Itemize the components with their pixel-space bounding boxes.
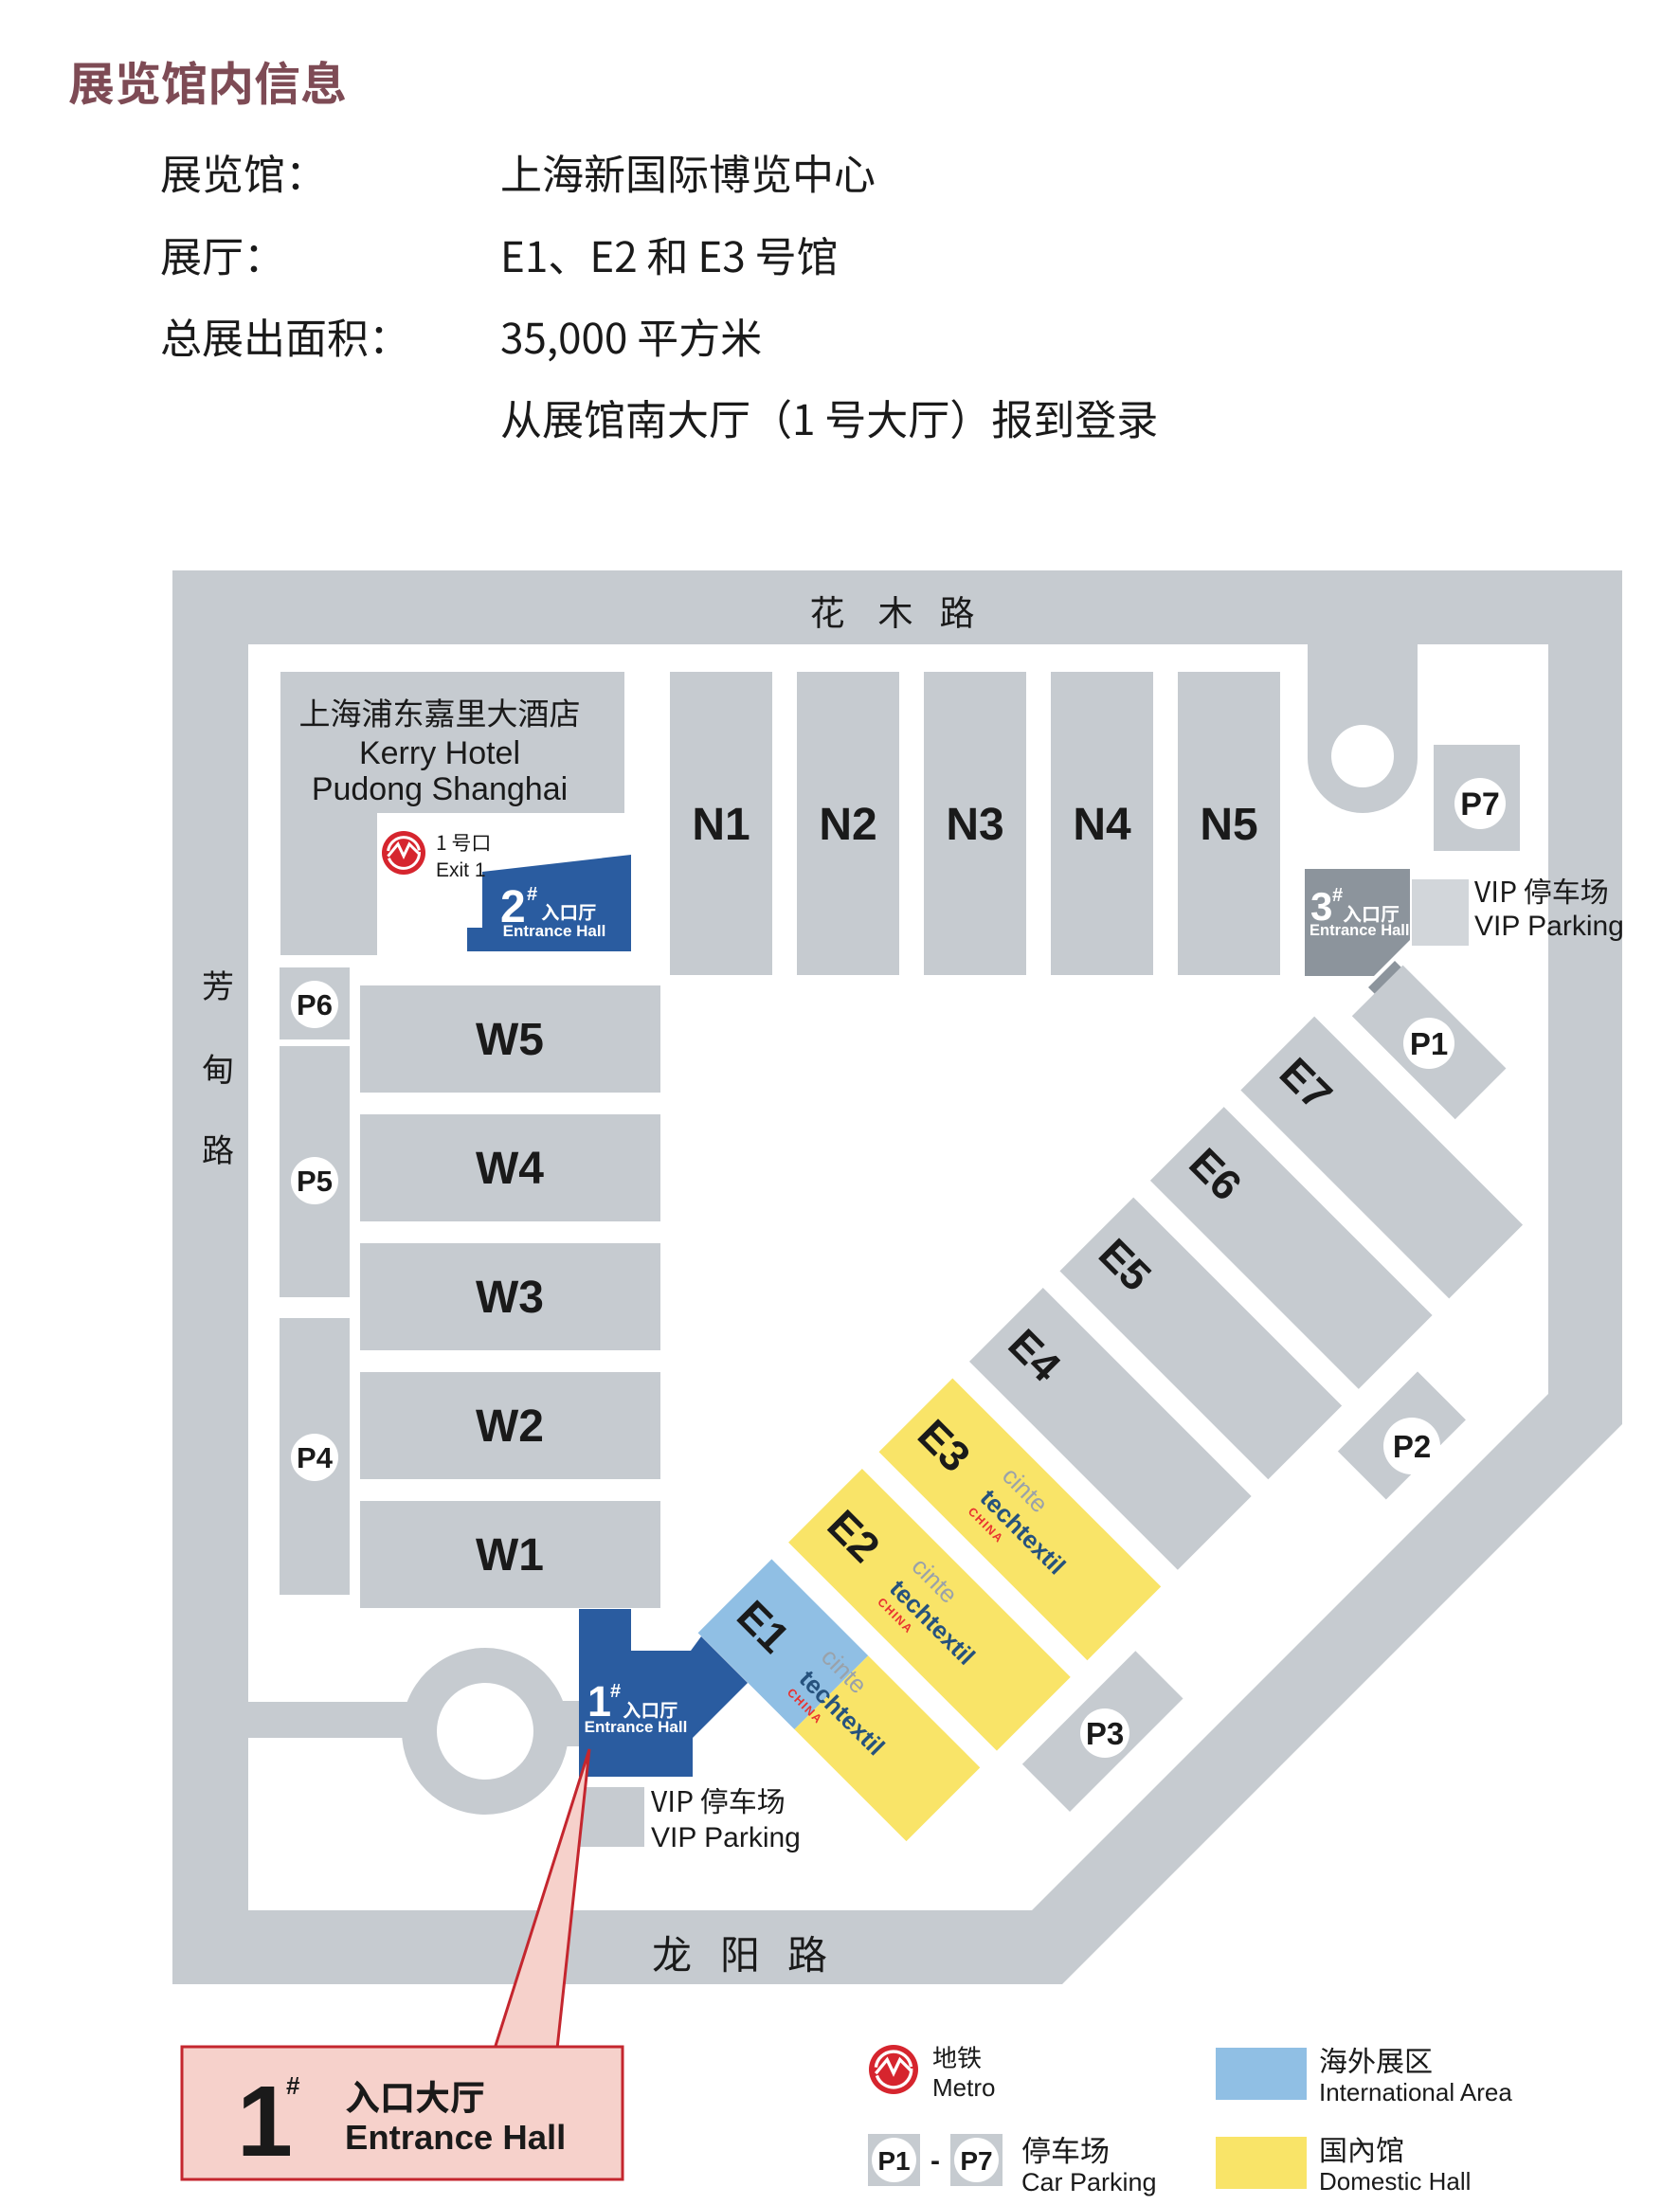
svg-text:Entrance Hall: Entrance Hall bbox=[585, 1718, 688, 1736]
svg-text:VIP Parking: VIP Parking bbox=[651, 1822, 801, 1853]
svg-text:W2: W2 bbox=[476, 1401, 544, 1452]
svg-text:N5: N5 bbox=[1200, 800, 1257, 850]
svg-text:#: # bbox=[286, 2071, 300, 2100]
svg-text:P7: P7 bbox=[960, 2146, 992, 2176]
svg-text:W4: W4 bbox=[476, 1144, 544, 1194]
svg-text:N2: N2 bbox=[819, 800, 876, 850]
svg-text:P6: P6 bbox=[297, 988, 333, 1021]
svg-text:VIP Parking: VIP Parking bbox=[1474, 911, 1624, 942]
svg-text:P1: P1 bbox=[1410, 1026, 1448, 1061]
svg-text:Pudong Shanghai: Pudong Shanghai bbox=[312, 771, 568, 807]
svg-text:W5: W5 bbox=[476, 1015, 544, 1065]
svg-text:#: # bbox=[1332, 885, 1343, 906]
svg-text:W1: W1 bbox=[476, 1530, 544, 1581]
svg-text:Metro: Metro bbox=[932, 2073, 995, 2102]
svg-text:Entrance Hall: Entrance Hall bbox=[1310, 922, 1409, 939]
svg-text:1: 1 bbox=[237, 2066, 293, 2178]
svg-text:P2: P2 bbox=[1393, 1429, 1431, 1464]
svg-text:Kerry Hotel: Kerry Hotel bbox=[359, 735, 520, 771]
svg-text:Domestic Hall: Domestic Hall bbox=[1319, 2167, 1471, 2196]
svg-text:#: # bbox=[610, 1681, 621, 1702]
svg-text:N3: N3 bbox=[946, 800, 1003, 850]
svg-text:N4: N4 bbox=[1073, 800, 1131, 850]
svg-text:P1: P1 bbox=[877, 2146, 910, 2176]
svg-text:W3: W3 bbox=[476, 1273, 544, 1323]
svg-text:International Area: International Area bbox=[1319, 2078, 1512, 2106]
svg-text:Entrance Hall: Entrance Hall bbox=[503, 922, 606, 940]
svg-text:Entrance Hall: Entrance Hall bbox=[345, 2118, 566, 2157]
svg-text:P4: P4 bbox=[297, 1441, 334, 1474]
svg-text:Car Parking: Car Parking bbox=[1021, 2168, 1157, 2196]
svg-text:P3: P3 bbox=[1086, 1716, 1124, 1751]
svg-text:P7: P7 bbox=[1460, 786, 1500, 822]
svg-text:N1: N1 bbox=[692, 800, 750, 850]
svg-text:Exit 1: Exit 1 bbox=[436, 859, 486, 881]
svg-text:-: - bbox=[930, 2145, 940, 2177]
svg-text:P5: P5 bbox=[297, 1165, 333, 1198]
svg-text:#: # bbox=[527, 884, 537, 905]
